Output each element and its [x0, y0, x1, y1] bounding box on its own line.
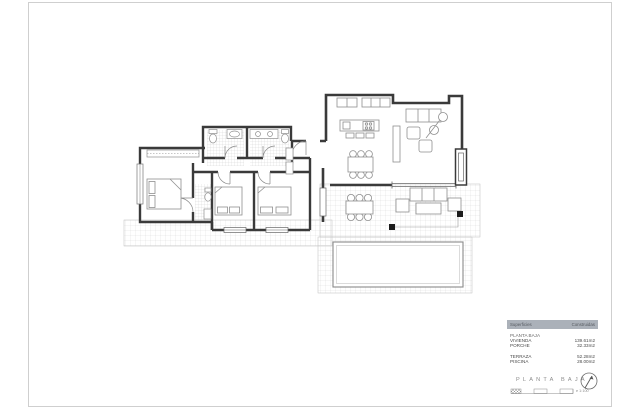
- plan-title: PLANTA BAJA: [516, 377, 588, 383]
- living-window: [456, 149, 467, 185]
- master-wardrobe: [147, 150, 199, 157]
- lounge-set: [393, 109, 448, 162]
- dining-set: [348, 151, 373, 179]
- pool: [333, 242, 463, 287]
- legend-table: Superficies Construidas PLANTA BAJA VIVI…: [507, 320, 598, 365]
- legend-header: Superficies Construidas: [507, 320, 598, 329]
- drawing-page: Superficies Construidas PLANTA BAJA VIVI…: [0, 0, 640, 412]
- legend-row: PORCHE 32.33m2: [510, 343, 595, 348]
- scale-bar: [511, 389, 573, 394]
- legend-row: PISCINA 28.00m2: [510, 359, 595, 364]
- beds: [147, 179, 291, 215]
- legend-row-value: 28.00m2: [577, 359, 595, 364]
- legend-row-value: 32.33m2: [577, 343, 595, 348]
- legend-row-label: PISCINA: [510, 359, 528, 364]
- legend-col-construidas: Construidas: [572, 322, 595, 327]
- legend-row-label: PORCHE: [510, 343, 530, 348]
- legend-col-superficies: Superficies: [510, 322, 532, 327]
- scale-label: e 1:100: [576, 389, 589, 393]
- kitchen-furniture: [337, 98, 390, 138]
- terrace-door-window: [320, 188, 326, 216]
